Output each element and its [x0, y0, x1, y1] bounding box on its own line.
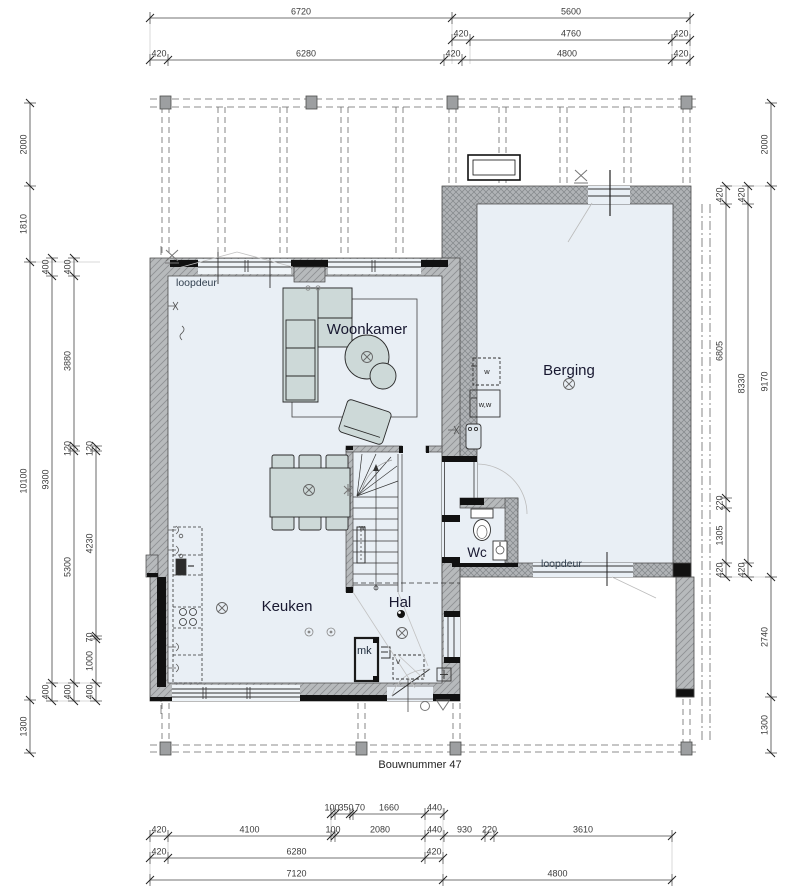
- label-stair-w: w: [358, 525, 365, 532]
- room-label-woonkamer: Woonkamer: [327, 321, 408, 338]
- dim-label-4800: 4800: [557, 49, 577, 59]
- dim-chain-bottom-row-3: 4206280420: [146, 847, 447, 865]
- dim-chain-left-col-1: 20001810101001300: [19, 99, 37, 757]
- dim-label-420: 420: [151, 825, 166, 835]
- dim-label-120: 120: [63, 441, 73, 456]
- kitchen-window: [172, 685, 300, 701]
- dining-set: [270, 455, 350, 530]
- label-loopdeur-berging: loopdeur: [541, 558, 582, 570]
- dim-label-1305: 1305: [715, 525, 725, 545]
- dim-label-2000: 2000: [760, 134, 770, 154]
- dim-label-6720: 6720: [291, 7, 311, 17]
- dim-label-9300: 9300: [41, 469, 51, 489]
- dim-label-1300: 1300: [19, 716, 29, 736]
- dim-label-5600: 5600: [561, 7, 581, 17]
- floorplan-drawing: 6720560042047604204206280420480042010035…: [0, 0, 795, 892]
- dim-chain-top-row-2: 4204760420: [448, 29, 694, 47]
- dim-label-420: 420: [426, 847, 441, 857]
- tap-drain-symbols: [421, 700, 451, 711]
- dim-label-420: 420: [445, 49, 460, 59]
- side-table: [370, 363, 396, 389]
- skylight: [468, 155, 520, 180]
- dim-label-8330: 8330: [737, 373, 747, 393]
- label-loopdeur-front: loopdeur: [176, 277, 217, 289]
- dim-label-1810: 1810: [19, 214, 29, 234]
- dim-label-420: 420: [715, 187, 725, 202]
- boiler: [466, 424, 481, 449]
- room-label-wc: Wc: [467, 545, 487, 560]
- front-window-right: [328, 259, 421, 274]
- dim-label-5300: 5300: [63, 557, 73, 577]
- dim-chain-left-col-3: 40038801205300400: [63, 254, 81, 705]
- dim-label-930: 930: [457, 825, 472, 835]
- dim-label-6805: 6805: [715, 341, 725, 361]
- dim-label-1000: 1000: [85, 651, 95, 671]
- dim-label-2740: 2740: [760, 627, 770, 647]
- dim-label-70: 70: [355, 803, 365, 813]
- dim-label-420: 420: [453, 29, 468, 39]
- sink: [176, 559, 186, 575]
- floorplan-canvas: 6720560042047604204206280420480042010035…: [0, 0, 795, 892]
- dim-label-100: 100: [325, 825, 340, 835]
- label-w-appliance: w: [483, 367, 490, 376]
- room-label-keuken: Keuken: [262, 598, 313, 615]
- smoke-detector: [397, 610, 405, 618]
- dim-label-3880: 3880: [63, 351, 73, 371]
- dim-chain-bottom-row-1: 100350701660440: [324, 803, 448, 821]
- dim-label-350: 350: [338, 803, 353, 813]
- dim-label-420: 420: [715, 562, 725, 577]
- dining-table: [270, 468, 350, 517]
- dim-label-400: 400: [85, 684, 95, 699]
- dim-label-420: 420: [151, 49, 166, 59]
- dim-label-420: 420: [151, 847, 166, 857]
- dim-label-70: 70: [85, 632, 95, 642]
- dim-label-4800: 4800: [547, 869, 567, 879]
- dim-label-420: 420: [673, 29, 688, 39]
- dim-label-420: 420: [737, 562, 747, 577]
- dim-label-440: 440: [427, 803, 442, 813]
- dim-label-4760: 4760: [561, 29, 581, 39]
- room-label-hal: Hal: [389, 594, 412, 611]
- hall-side-window: [444, 611, 460, 663]
- dim-label-400: 400: [41, 684, 51, 699]
- dim-chain-right-col-1: 42068052201305420: [715, 182, 733, 581]
- dim-label-1300: 1300: [760, 715, 770, 735]
- dim-label-2000: 2000: [19, 134, 29, 154]
- label-bouwnummer: Bouwnummer 47: [378, 759, 461, 771]
- dim-label-9170: 9170: [760, 371, 770, 391]
- dim-label-420: 420: [737, 187, 747, 202]
- dim-chain-top-row-1: 67205600: [146, 7, 694, 25]
- dim-label-7120: 7120: [286, 869, 306, 879]
- dim-label-10100: 10100: [19, 468, 29, 493]
- dim-label-400: 400: [63, 259, 73, 274]
- dim-label-1660: 1660: [379, 803, 399, 813]
- garden-screen-wall: [676, 577, 694, 697]
- dim-label-4230: 4230: [85, 533, 95, 553]
- label-ww-appliance: w,w: [478, 400, 492, 409]
- dim-label-400: 400: [41, 259, 51, 274]
- dim-label-6280: 6280: [286, 847, 306, 857]
- dim-label-400: 400: [63, 684, 73, 699]
- dim-chain-bottom-row-2: 420410010020804409302203610: [146, 825, 676, 843]
- dim-label-120: 120: [85, 441, 95, 456]
- dim-chain-right-col-3: 2000917027401300: [760, 99, 778, 757]
- dim-label-2080: 2080: [370, 825, 390, 835]
- dim-label-4100: 4100: [239, 825, 259, 835]
- label-mk: mk: [357, 645, 372, 657]
- dim-label-220: 220: [482, 825, 497, 835]
- dim-chain-left-col-2: 4009300400: [41, 254, 59, 705]
- dim-label-420: 420: [673, 49, 688, 59]
- dim-chain-top-row-3: 42062804204800420: [146, 49, 694, 67]
- dim-chain-right-col-2: 4208330420: [737, 182, 755, 581]
- dim-label-6280: 6280: [296, 49, 316, 59]
- dim-chain-bottom-row-4: 71204800: [146, 869, 676, 887]
- dim-label-3610: 3610: [573, 825, 593, 835]
- dim-label-440: 440: [427, 825, 442, 835]
- dim-chain-left-col-4: 1204230701000400: [85, 441, 103, 705]
- room-label-berging: Berging: [543, 362, 595, 379]
- dim-label-100: 100: [324, 803, 339, 813]
- dim-label-220: 220: [715, 495, 725, 510]
